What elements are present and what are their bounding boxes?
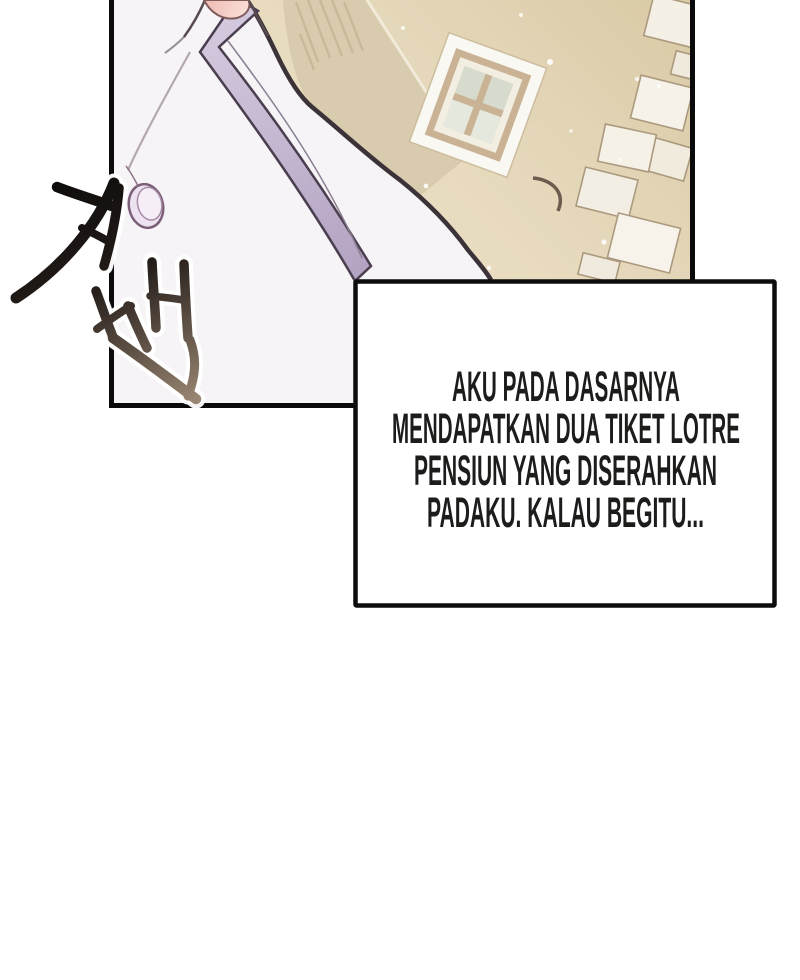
dialogue-line-1: AKU PADA DASARNYA [452,363,680,411]
webtoon-page: AKU PADA DASARNYA MENDAPATKAN DUA TIKET … [0,0,800,980]
dialogue-line-4: PADAKU. KALAU BEGITU... [427,489,704,537]
dialogue-line-2: MENDAPATKAN DUA TIKET LOTRE [392,405,740,453]
page-art: AKU PADA DASARNYA MENDAPATKAN DUA TIKET … [0,0,800,980]
dialogue-line-3: PENSIUN YANG DISERAHKAN [414,447,717,495]
dialogue-box: AKU PADA DASARNYA MENDAPATKAN DUA TIKET … [356,282,775,606]
